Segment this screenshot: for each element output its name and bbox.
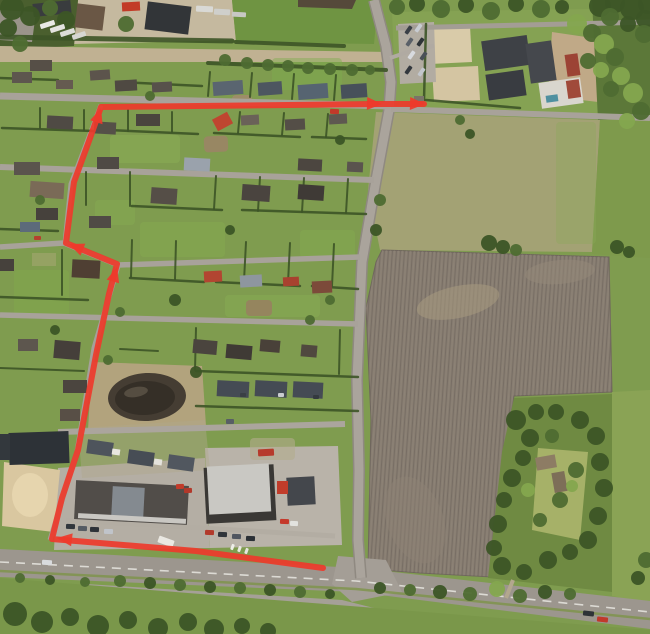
tree (118, 16, 134, 32)
tree (433, 585, 447, 599)
building (240, 274, 263, 287)
building (115, 79, 138, 91)
tree (548, 404, 564, 420)
tree (432, 0, 450, 18)
tree (294, 586, 306, 598)
tree (516, 564, 532, 580)
tree (241, 57, 253, 69)
tree (579, 531, 597, 549)
tree (538, 585, 552, 599)
tree (632, 102, 650, 120)
tree (481, 235, 497, 251)
tree (219, 54, 231, 66)
tree (465, 129, 475, 139)
building (63, 380, 87, 393)
vehicle (232, 12, 246, 18)
tree (589, 507, 607, 525)
tree (35, 195, 45, 205)
tree (493, 557, 511, 575)
tree (80, 577, 90, 587)
tree (15, 573, 25, 583)
tree (31, 611, 53, 633)
tree (114, 575, 126, 587)
building (298, 83, 329, 100)
building (525, 40, 556, 83)
ground-patch (225, 295, 320, 317)
building (566, 79, 581, 99)
vehicle (42, 560, 52, 566)
tree (513, 589, 527, 603)
tree (533, 513, 547, 527)
tree (606, 48, 624, 66)
building (285, 118, 306, 130)
building (122, 2, 140, 12)
building (32, 253, 56, 266)
tree (365, 65, 375, 75)
tree (225, 225, 235, 235)
tree (489, 581, 505, 597)
building (283, 277, 299, 287)
tree (115, 307, 125, 317)
pasture-right-lower (612, 390, 650, 604)
school-sand-2 (432, 66, 480, 102)
sand-pile-light (12, 473, 48, 517)
ground-patch (14, 270, 69, 318)
building (481, 35, 531, 71)
tree (262, 59, 274, 71)
building (72, 259, 101, 278)
building (90, 69, 111, 80)
tree (591, 453, 609, 471)
tree (552, 492, 568, 508)
tree (562, 544, 578, 560)
tree (204, 581, 216, 593)
vehicle (78, 526, 87, 531)
building (112, 448, 121, 455)
vehicle (176, 484, 184, 489)
pasture-right-strip (592, 116, 650, 258)
tree (521, 429, 539, 447)
building (29, 181, 64, 199)
aerial-photo-map (0, 0, 650, 634)
vehicle (205, 530, 214, 535)
tree (346, 64, 358, 76)
vehicle (330, 109, 339, 114)
ground-patch (246, 300, 272, 316)
tree (374, 582, 386, 594)
tree (234, 618, 250, 634)
tree (20, 6, 40, 26)
building (485, 69, 526, 100)
building (8, 431, 69, 465)
building (329, 114, 347, 125)
hedge (131, 240, 132, 277)
tree (506, 410, 526, 430)
tree (264, 584, 276, 596)
building (204, 271, 223, 283)
tree (174, 579, 186, 591)
building (111, 486, 145, 518)
tree (566, 480, 578, 492)
tree (486, 540, 502, 556)
building (20, 222, 40, 232)
tree (503, 469, 521, 487)
tree (515, 450, 531, 466)
tree (45, 575, 55, 585)
building (30, 60, 52, 71)
tree (145, 91, 155, 101)
tree (631, 571, 645, 585)
tree (545, 429, 559, 443)
tree (335, 135, 345, 145)
building (341, 83, 368, 99)
tree (595, 479, 613, 497)
tree (510, 244, 522, 256)
building (241, 115, 259, 126)
vehicle (313, 395, 319, 399)
tree (528, 404, 544, 420)
building (286, 476, 315, 505)
building (18, 339, 38, 351)
ground-patch (110, 135, 180, 163)
vehicle (90, 527, 99, 532)
building (225, 344, 252, 360)
building (298, 184, 325, 201)
building (47, 115, 74, 129)
tree (610, 240, 624, 254)
ground-patch (556, 122, 596, 244)
tree (42, 0, 58, 16)
vehicle (66, 524, 75, 529)
tree (555, 0, 569, 14)
tree (61, 608, 79, 626)
tree (619, 113, 635, 129)
building (241, 184, 270, 202)
building (312, 280, 333, 293)
building (184, 157, 211, 171)
building (258, 81, 283, 96)
building (154, 458, 163, 465)
tree (496, 240, 510, 254)
vehicle (196, 6, 213, 13)
tree (3, 602, 27, 626)
building (75, 3, 106, 30)
tree (620, 16, 636, 32)
tree (282, 60, 294, 72)
tree (489, 515, 507, 533)
building (152, 81, 172, 92)
building (60, 409, 80, 421)
building (89, 216, 111, 228)
vehicle (278, 393, 284, 397)
tree (532, 0, 550, 18)
building (0, 259, 14, 271)
building (12, 72, 32, 83)
tree (623, 246, 635, 258)
tree (302, 62, 314, 74)
vehicle (280, 519, 289, 524)
tree (496, 492, 512, 508)
vehicle (34, 236, 41, 240)
tree (119, 611, 137, 629)
vehicle (232, 534, 241, 539)
tree (623, 83, 643, 103)
vehicle (258, 449, 274, 457)
tree (455, 115, 465, 125)
tree (580, 53, 596, 69)
tree (374, 194, 386, 206)
tree (325, 295, 335, 305)
tree (601, 8, 619, 26)
building (53, 340, 80, 360)
tree (603, 81, 619, 97)
tree (103, 355, 113, 365)
tree (463, 587, 477, 601)
tree (370, 224, 382, 236)
tree (190, 366, 202, 378)
vehicle (240, 393, 246, 397)
building (260, 339, 281, 353)
hedge (175, 241, 176, 279)
vehicle (104, 529, 113, 534)
vehicle (184, 488, 192, 493)
building (277, 481, 288, 494)
building (56, 80, 73, 89)
building (301, 344, 318, 357)
building (14, 162, 40, 175)
tree (12, 36, 28, 52)
building (192, 339, 217, 355)
building (207, 463, 271, 514)
tree (144, 577, 156, 589)
tree (305, 315, 315, 325)
tree (564, 588, 576, 600)
building (150, 187, 177, 205)
tree (568, 462, 584, 478)
tree (325, 589, 335, 599)
tree (593, 62, 609, 78)
building (298, 158, 323, 171)
tree (587, 427, 605, 445)
ground-patch (204, 135, 229, 152)
building (97, 157, 119, 169)
tree (169, 294, 181, 306)
building (213, 80, 244, 96)
aerial-map-screenshot (0, 0, 650, 634)
tree (539, 551, 557, 569)
tree (482, 2, 500, 20)
tree (179, 613, 197, 631)
vehicle (226, 419, 234, 424)
ground-patch (140, 222, 225, 257)
hedge (339, 330, 340, 374)
tree (234, 582, 246, 594)
tree (324, 63, 336, 75)
tree (404, 584, 416, 596)
building (136, 114, 160, 126)
building (36, 208, 58, 220)
building (347, 162, 364, 173)
tree (571, 411, 589, 429)
vehicle (218, 532, 227, 537)
tree (521, 483, 535, 497)
building (144, 1, 191, 34)
tree (50, 325, 60, 335)
ground-patch (300, 230, 355, 258)
vehicle (290, 521, 298, 526)
building (0, 434, 10, 460)
vehicle (214, 9, 230, 16)
vehicle (246, 536, 255, 541)
